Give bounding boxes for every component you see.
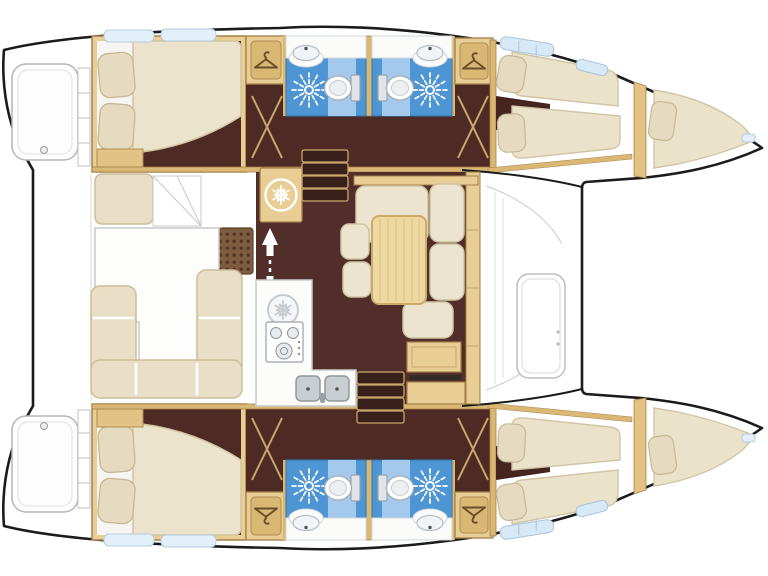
floor-plan-canvas [0, 0, 768, 576]
hull-port [12, 29, 755, 178]
cockpit-stairs [153, 176, 201, 226]
deck-grate [219, 228, 253, 274]
foredeck-hatch [517, 274, 565, 378]
refrigerator-cabinet [260, 168, 302, 222]
dinette-bench [430, 184, 464, 242]
stool [343, 262, 371, 297]
yacht-floor-plan [0, 0, 768, 576]
dinette-seat [403, 302, 453, 338]
helm-seat [95, 174, 153, 224]
saloon-sideboard [466, 172, 480, 404]
stove [266, 322, 303, 362]
stool [341, 224, 369, 259]
faucet [320, 393, 325, 403]
companionway-steps-port [302, 150, 348, 201]
dinette-bench [430, 244, 464, 300]
companionway-steps-starboard [357, 372, 404, 423]
dinette-table [372, 216, 426, 304]
